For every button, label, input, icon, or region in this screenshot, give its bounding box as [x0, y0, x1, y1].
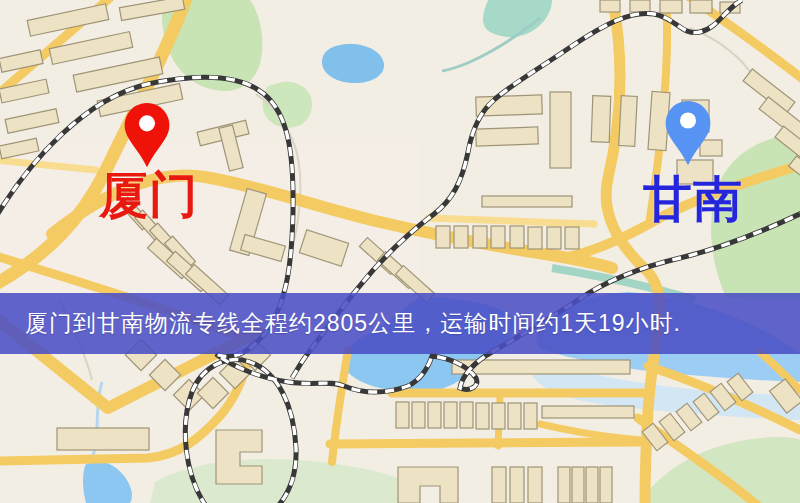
route-info-banner: 厦门到甘南物流专线全程约2805公里，运输时间约1天19小时. — [0, 293, 800, 354]
route-info-text: 厦门到甘南物流专线全程约2805公里，运输时间约1天19小时. — [0, 308, 681, 339]
destination-label: 甘南 — [598, 174, 788, 225]
origin-label: 厦门 — [54, 170, 244, 221]
map-canvas — [0, 0, 800, 503]
logistics-route-map: 厦门 甘南 厦门到甘南物流专线全程约2805公里，运输时间约1天19小时. — [0, 0, 800, 503]
